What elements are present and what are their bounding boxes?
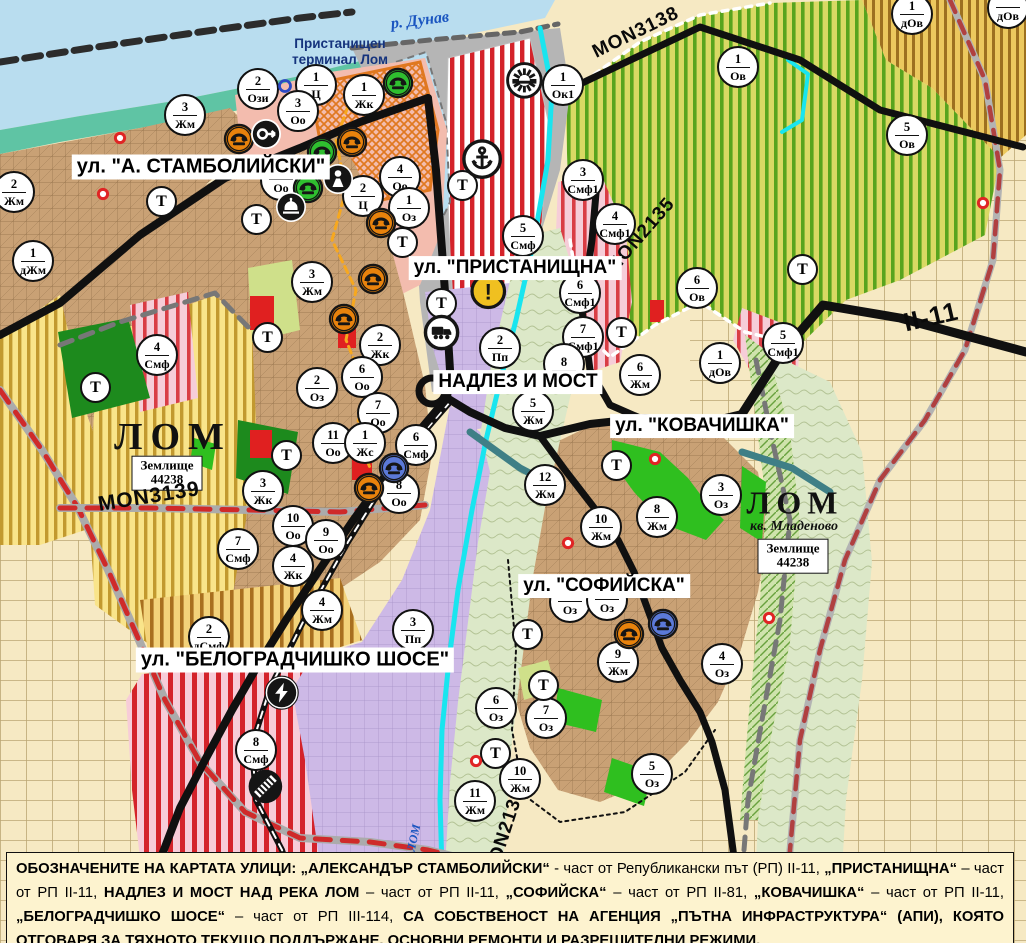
note-text: – част от РП III-114, [225,909,403,925]
street-name-label: ул. "СОФИЙСКА" [518,574,690,598]
anchor-icon [460,137,504,186]
zone-marker: 1Ок1 [542,64,584,106]
zone-marker: 1дОв [891,0,933,35]
zone-marker-number: 4 [281,552,305,567]
zone-marker-number: 5 [521,397,545,412]
zone-marker-code: Ок1 [552,86,574,100]
zone-marker: 4Жк [272,545,314,587]
zone-marker: 8Жм [636,496,678,538]
street-name-label: ул. "БЕЛОГРАДЧИШКО ШОСЕ" [136,648,454,673]
zone-marker-number: 10 [281,512,305,527]
note-text: – част от РП II-11, [864,885,1004,901]
zone-marker: 5Смф1 [762,322,804,364]
zone-marker-code: Смф [144,356,169,370]
zone-marker-number: 6 [568,279,592,294]
zone-marker-number: 12 [533,471,557,486]
zone-marker-code: Смф [225,550,250,564]
zone-marker-code: Оз [563,602,577,616]
reddot-icon [966,186,1000,225]
zone-marker-number: 5 [640,760,664,775]
zone-marker: 2Пп [479,327,521,369]
zone-marker-code: Оо [318,541,333,555]
zone-marker-number: 4 [710,650,734,665]
zone-marker-code: Жк [254,492,273,506]
river-lom-label: ЛОМ [404,823,424,853]
dome-icon [274,190,308,229]
zone-marker-code: Жм [302,283,322,297]
zone-marker-number: 7 [571,323,595,338]
note-emphasis-text: „СОФИЙСКА“ [506,885,607,901]
zone-marker: 3Оз [700,474,742,516]
orange-monument-icon [364,206,398,245]
zone-marker-number [996,0,1020,8]
truck-icon [422,313,461,357]
note-emphasis-text: „ПРИСТАНИЩНА“ [824,861,957,877]
zone-marker-number: 11 [321,429,345,444]
zone-marker-number: 6 [404,431,428,446]
note-emphasis-text: „БЕЛОГРАДЧИШКО ШОСЕ“ [16,909,225,925]
zone-marker: дОв [987,0,1026,29]
land-box-east: Землище 44238 [757,539,828,574]
zone-marker-number: 4 [388,163,412,178]
road-code-label: II-11 [900,296,961,339]
city-label-lom-west: ЛОМ [114,415,232,459]
terrain-t-marker: Т [271,440,302,471]
terrain-t-marker: Т [512,619,543,650]
zone-marker-code: Оз [402,209,416,223]
zone-marker-code: Оз [310,389,324,403]
note-emphasis-text: „КОВАЧИШКА“ [754,885,864,901]
zone-marker-code: Ов [689,289,705,303]
zone-marker-code: Жм [608,663,628,677]
zone-marker-code: Жм [4,193,24,207]
zone-marker-code: Смф1 [767,344,798,358]
zone-marker: 1дОв [699,342,741,384]
zone-marker-number: 1 [551,71,575,86]
blue-monument-icon [646,607,680,646]
zone-marker-number: 8 [552,356,576,371]
street-name-label: ул. "А. СТАМБОЛИЙСКИ" [72,155,330,180]
terrain-t-marker: Т [787,254,818,285]
zone-marker-code: Пп [492,349,508,363]
note-emphasis-text: ОБОЗНАЧЕНИТЕ НА КАРТАТА УЛИЦИ: „АЛЕКСАНД… [16,861,550,877]
zone-marker-number: 2 [488,334,512,349]
zone-marker: 2Оз [296,367,338,409]
terrain-t-marker: Т [146,186,177,217]
zone-marker: 7Смф [217,528,259,570]
zone-marker-number: 3 [401,616,425,631]
zone-marker: 3Смф1 [562,159,604,201]
note-text: - част от Републикански път (РП) II-11, [550,861,824,877]
zone-marker-code: Жм [523,412,543,426]
zone-marker-number: 9 [314,526,338,541]
zone-marker-number: 2 [305,374,329,389]
zone-marker: 6Ов [676,267,718,309]
zone-marker-number: 10 [589,513,613,528]
zone-marker-code: Жм [591,528,611,542]
zone-marker-number: 2 [197,623,221,638]
zone-marker-code: Оо [354,378,369,392]
zone-marker: 4Жм [301,589,343,631]
zone-marker-number: 2 [368,331,392,346]
zone-marker-code: Ов [730,68,746,82]
zone-marker-code: дОв [997,8,1019,22]
street-name-label: ул. "ПРИСТАНИЩНА" [409,256,622,280]
zone-marker-code: дОв [709,364,731,378]
zone-marker-code: Смф [510,237,535,251]
zone-marker-number: 3 [173,101,197,116]
zone-marker-code: Жм [465,802,485,816]
zone-marker-code: Смф1 [567,181,598,195]
zone-marker-code: Жм [175,116,195,130]
zone-marker-number: 7 [226,535,250,550]
zone-marker: 4Смф [136,334,178,376]
zone-marker-number: 11 [463,787,487,802]
zone-marker-number: 1 [900,0,924,15]
zone-marker-code: Смф1 [599,225,630,239]
zone-marker-number: 3 [709,481,733,496]
zone-marker: 5Смф [502,215,544,257]
orange-monument-icon [335,125,369,164]
zone-marker-number: 5 [511,222,535,237]
zoning-map-page: р. Дунав Пристанищен терминал Лом ЛОМ Зе… [0,0,1026,943]
railway-icon [245,766,286,812]
zone-marker-number: 6 [628,361,652,376]
orange-monument-icon [327,302,361,341]
zone-marker-code: Оо [285,527,300,541]
terrain-t-marker: Т [606,317,637,348]
terrain-t-marker: Т [528,670,559,701]
terrain-t-marker: Т [80,372,111,403]
note-text: – част от РП II-11, [359,885,505,901]
zone-marker-number: 10 [508,765,532,780]
street-name-label: ул. "КОВАЧИШКА" [610,414,794,438]
zone-marker-number: 8 [244,736,268,751]
city-label-lom-east: ЛОМ [747,485,844,522]
port-terminal-label: Пристанищен терминал Лом [292,36,388,68]
zone-marker: 3Жк [242,470,284,512]
zone-marker-code: Жк [371,346,390,360]
svg-text:!: ! [484,279,492,304]
terrain-t-marker: Т [601,450,632,481]
zone-marker-code: Жм [510,780,530,794]
zone-marker-number: 4 [603,210,627,225]
district-label-mladenovo: кв. Младеново [750,519,838,535]
zone-marker-number: 1 [726,53,750,68]
zone-marker-number: 2 [2,178,26,193]
river-danube-label: р. Дунав [390,9,450,34]
zone-marker: 1Ов [717,46,759,88]
zone-marker: 2Жм [0,171,35,213]
zone-marker-number: 6 [484,694,508,709]
zone-marker: 5Жм [512,390,554,432]
zone-marker-number: 2 [246,75,270,90]
zone-marker-code: Пп [405,631,421,645]
blue-monument-icon [377,451,411,490]
zone-marker-number: 4 [310,596,334,611]
zone-marker-code: Жк [355,96,374,110]
zone-marker: 10Жм [580,506,622,548]
zone-marker-number: 1 [352,81,376,96]
reddot-icon [551,526,585,565]
bluering-icon [268,69,302,108]
arrow-icon [249,117,283,156]
zone-marker-number: 7 [366,399,390,414]
zone-marker: 5Ов [886,114,928,156]
zone-marker-code: дОв [901,15,923,29]
zone-marker-code: Жс [356,444,373,458]
zone-marker: 9Оо [305,519,347,561]
zone-marker-code: Смф1 [564,294,595,308]
reddot-icon [86,177,120,216]
reddot-icon [752,601,786,640]
zone-marker: 3Жм [291,261,333,303]
zone-marker-code: Оз [489,709,503,723]
zone-marker-code: Оз [600,600,614,614]
zone-marker-code: Жм [647,518,667,532]
zone-marker-code: Жм [630,376,650,390]
reddot-icon [638,442,672,481]
zone-marker-code: Оз [715,665,729,679]
zone-marker: 11Жм [454,780,496,822]
zone-marker-number: 1 [708,349,732,364]
zone-marker: 4Оз [701,643,743,685]
zone-marker-number: 3 [251,477,275,492]
zone-marker-code: Жм [312,611,332,625]
map-annotations: р. Дунав Пристанищен терминал Лом ЛОМ Зе… [0,0,1026,943]
zone-marker-code: Жм [535,486,555,500]
zone-marker-code: Жк [284,567,303,581]
terrain-t-marker: Т [241,204,272,235]
terrain-t-marker: Т [252,322,283,353]
zone-marker-number: 7 [534,704,558,719]
zone-marker-number: 1 [304,71,328,86]
zone-marker-number: 8 [645,503,669,518]
zone-marker: 3Жм [164,94,206,136]
zone-marker-number: 6 [685,274,709,289]
zone-marker-number: 4 [145,341,169,356]
zone-marker-code: Оо [290,112,305,126]
zone-marker-number: 5 [771,329,795,344]
zone-marker-number: 1 [397,194,421,209]
zone-marker-code: Оз [714,496,728,510]
orange-monument-icon [612,617,646,656]
zone-marker: 1Жк [343,74,385,116]
zone-marker-code: дЖм [20,262,46,276]
zone-marker: 1дЖм [12,240,54,282]
zone-marker-code: Ов [899,136,915,150]
zone-marker-number: 5 [895,121,919,136]
zone-marker-number: 6 [350,363,374,378]
note-text: – част от РП II-81, [607,885,754,901]
zone-marker-code: Оо [391,494,406,508]
zone-marker-number: 3 [300,268,324,283]
road-code-label: MON3138 [589,3,683,64]
street-name-label: НАДЛЕЗ И МОСТ [433,370,602,394]
zone-marker: 4Смф1 [594,203,636,245]
zone-marker-number: 1 [21,247,45,262]
lightning-icon [263,674,300,716]
zone-marker-number: 1 [353,429,377,444]
zone-marker: 7Оз [525,697,567,739]
sun-icon [504,60,545,106]
orange-monument-icon [356,262,390,301]
zone-marker-code: Оз [645,775,659,789]
reddot-icon [459,744,493,783]
zone-marker-code: Смф [243,751,268,765]
zone-marker: 12Жм [524,464,566,506]
note-emphasis-text: НАДЛЕЗ И МОСТ НАД РЕКА ЛОМ [104,885,359,901]
zone-marker-number: 3 [571,166,595,181]
zone-marker: 6Жм [619,354,661,396]
zone-marker: 6Оз [475,687,517,729]
zone-marker-code: Оз [539,719,553,733]
zone-marker-code: Ози [247,90,268,104]
map-note: ОБОЗНАЧЕНИТЕ НА КАРТАТА УЛИЦИ: „АЛЕКСАНД… [6,852,1014,943]
zone-marker: 5Оз [631,753,673,795]
green-monument-icon [381,66,415,105]
zone-marker-code: Оо [325,444,340,458]
zone-marker: 3Пп [392,609,434,651]
